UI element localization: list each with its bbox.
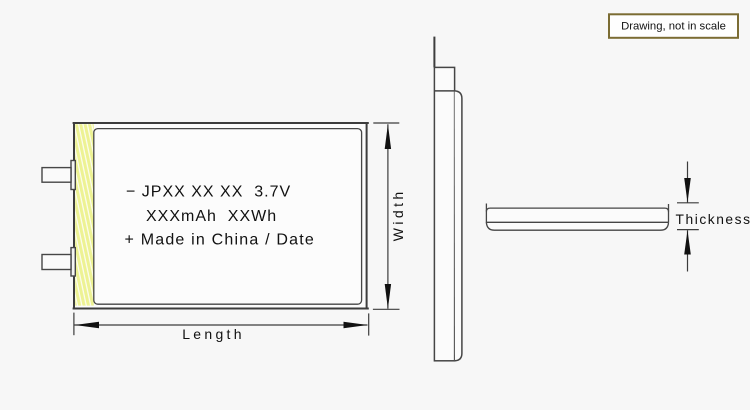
svg-text:+ Made in China / Date: + Made in China / Date xyxy=(125,232,316,249)
svg-text:Width: Width xyxy=(390,188,406,241)
svg-text:XXXmAh XXWh: XXXmAh XXWh xyxy=(146,208,277,225)
svg-text:Drawing, not in scale: Drawing, not in scale xyxy=(621,21,726,33)
svg-text:Thickness: Thickness xyxy=(676,212,750,227)
svg-text:Length: Length xyxy=(182,326,245,342)
svg-text:− JPXX XX XX 3.7V: − JPXX XX XX 3.7V xyxy=(126,184,291,201)
